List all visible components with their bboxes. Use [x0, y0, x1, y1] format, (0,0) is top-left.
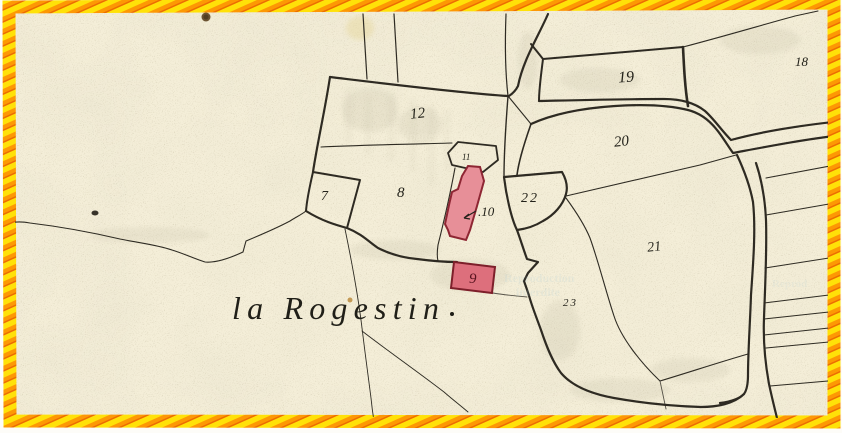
svg-text:23: 23: [563, 297, 578, 309]
svg-text:20: 20: [613, 133, 630, 151]
svg-text:Reproduction: Reproduction: [504, 271, 575, 285]
svg-text:19: 19: [618, 68, 635, 86]
svg-text:9: 9: [469, 271, 477, 287]
svg-text:interdite: interdite: [516, 285, 561, 299]
svg-text:18: 18: [795, 54, 809, 69]
svg-text:7: 7: [321, 189, 329, 204]
svg-text:8: 8: [397, 185, 405, 201]
svg-text:11: 11: [462, 152, 470, 162]
svg-text:Archives départementales: Archives départementales: [352, 129, 477, 143]
svg-text:22: 22: [521, 191, 539, 206]
svg-text:Reprod: Reprod: [772, 278, 807, 290]
svg-text:12: 12: [409, 105, 426, 123]
svg-text:.10: .10: [478, 204, 495, 219]
svg-text:21: 21: [647, 239, 662, 255]
svg-text:la Rogestin: la Rogestin: [232, 290, 445, 326]
